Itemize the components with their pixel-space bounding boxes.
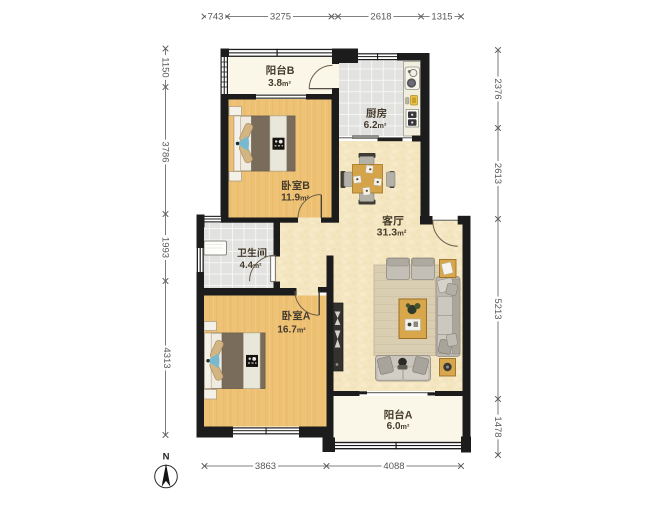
svg-text:3.8m²: 3.8m² <box>268 78 291 89</box>
svg-text:2618: 2618 <box>370 12 391 23</box>
svg-text:1478: 1478 <box>492 416 503 437</box>
svg-text:31.3m²: 31.3m² <box>377 226 407 238</box>
svg-text:743: 743 <box>208 12 224 23</box>
svg-text:5213: 5213 <box>492 298 503 319</box>
svg-text:2376: 2376 <box>492 78 503 99</box>
svg-text:1315: 1315 <box>431 12 452 23</box>
svg-text:1150: 1150 <box>159 57 170 77</box>
svg-text:11.9m²: 11.9m² <box>281 193 309 204</box>
svg-text:B: B <box>287 65 295 77</box>
svg-text:3863: 3863 <box>255 461 276 472</box>
svg-text:16.7m²: 16.7m² <box>277 325 306 336</box>
svg-text:3786: 3786 <box>159 141 170 162</box>
svg-text:B: B <box>302 180 310 192</box>
svg-text:A: A <box>405 409 413 421</box>
svg-text:2613: 2613 <box>492 163 503 184</box>
svg-text:N: N <box>163 452 170 463</box>
svg-text:6.0m²: 6.0m² <box>387 421 410 432</box>
svg-text:4088: 4088 <box>383 461 404 472</box>
svg-text:6.2m²: 6.2m² <box>364 120 387 131</box>
svg-text:3275: 3275 <box>270 12 291 23</box>
svg-text:1993: 1993 <box>159 237 170 258</box>
svg-text:4313: 4313 <box>161 347 172 368</box>
